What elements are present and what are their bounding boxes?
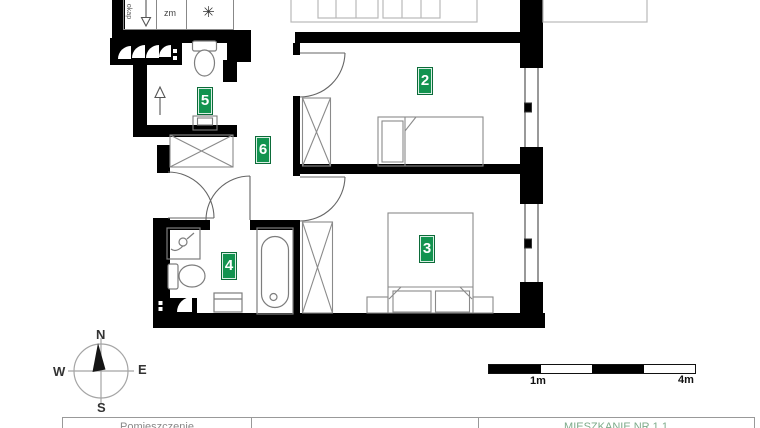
table-header-room: Pomieszczenie <box>63 421 251 428</box>
door-arc-room3 <box>300 177 345 221</box>
balcony-outline <box>291 0 647 22</box>
room-badge-6: 6 <box>255 136 271 164</box>
room-badge-3: 3 <box>419 235 435 263</box>
room-badge-5: 5 <box>197 87 213 115</box>
room-badge-2: 2 <box>417 67 433 95</box>
room-badge-4: 4 <box>221 252 237 280</box>
compass-rose <box>68 338 134 404</box>
entrance-arrow-icon <box>155 87 165 115</box>
window-frame <box>525 68 539 282</box>
scale-bar <box>488 364 696 374</box>
nightstand-icon <box>473 297 493 313</box>
compass-s-label: S <box>97 400 106 415</box>
scale-label-4m: 4m <box>678 374 694 386</box>
washbasin-icon <box>167 228 200 259</box>
washbasin-small-icon <box>193 116 217 130</box>
floor-plan: okap zm ✳ <box>0 0 760 428</box>
scale-segment <box>489 365 541 373</box>
compass-e-label: E <box>138 362 147 377</box>
washer-icon <box>214 293 242 312</box>
toilet-icon <box>168 264 205 289</box>
scale-segment <box>592 365 644 373</box>
scale-label-1m: 1m <box>530 375 546 387</box>
bathtub-icon <box>257 228 293 314</box>
compass-needle <box>93 343 106 372</box>
nightstand-icon <box>367 297 388 313</box>
neighbor-balcony-outline <box>543 0 647 22</box>
bed-double-icon <box>367 213 493 313</box>
scale-segment <box>541 365 593 373</box>
door-arc-room2 <box>300 53 345 97</box>
vent-shaft-marks <box>118 45 177 60</box>
compass-w-label: W <box>53 364 65 379</box>
footer-table: Pomieszczenie MIESZKANIE NR 1.1 <box>62 417 755 428</box>
hood-arrow-icon <box>142 0 151 26</box>
toilet-icon <box>193 41 217 76</box>
scale-segment <box>644 365 696 373</box>
table-header-apartment: MIESZKANIE NR 1.1 <box>478 421 754 428</box>
compass-n-label: N <box>96 327 105 342</box>
bed-single-icon <box>378 117 483 166</box>
table-divider <box>251 418 252 428</box>
door-arc-bathroom <box>206 176 250 220</box>
vent-shaft-marks <box>159 297 193 312</box>
